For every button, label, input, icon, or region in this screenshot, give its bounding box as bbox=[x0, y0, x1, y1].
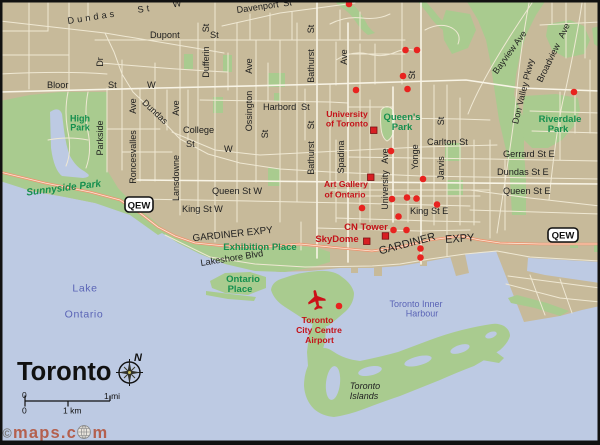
svg-text:Place: Place bbox=[228, 284, 253, 295]
svg-text:Park: Park bbox=[70, 123, 91, 133]
svg-text:St: St bbox=[301, 102, 310, 112]
svg-text:Harbour: Harbour bbox=[406, 309, 439, 319]
svg-text:Bathurst: Bathurst bbox=[306, 49, 316, 83]
svg-text:m: m bbox=[93, 424, 108, 442]
svg-text:Roncesvalles: Roncesvalles bbox=[128, 130, 138, 184]
svg-text:Ave: Ave bbox=[244, 58, 254, 73]
svg-text:Toronto: Toronto bbox=[17, 358, 111, 386]
svg-text:EXPY: EXPY bbox=[445, 232, 476, 246]
svg-text:SkyDome: SkyDome bbox=[315, 234, 358, 245]
svg-text:Park: Park bbox=[548, 124, 569, 135]
svg-text:College: College bbox=[183, 125, 214, 135]
svg-text:Exhibition Place: Exhibition Place bbox=[223, 242, 296, 253]
svg-text:Spadina: Spadina bbox=[336, 140, 346, 173]
svg-text:St: St bbox=[306, 24, 316, 33]
svg-text:W: W bbox=[147, 80, 156, 90]
svg-text:University: University bbox=[326, 109, 368, 119]
svg-text:QEW: QEW bbox=[552, 231, 575, 242]
svg-text:©: © bbox=[3, 427, 13, 441]
svg-text:Islands: Islands bbox=[350, 391, 379, 401]
svg-text:maps.c: maps.c bbox=[13, 424, 77, 442]
svg-text:St: St bbox=[260, 129, 270, 138]
svg-text:Dupont: Dupont bbox=[150, 30, 180, 40]
svg-text:N: N bbox=[134, 352, 143, 364]
svg-text:Ontario: Ontario bbox=[65, 309, 104, 321]
svg-text:Yonge: Yonge bbox=[410, 144, 420, 169]
svg-text:Dundas St E: Dundas St E bbox=[497, 167, 549, 177]
svg-text:1 km: 1 km bbox=[63, 406, 81, 416]
svg-text:Harbord: Harbord bbox=[263, 102, 296, 112]
svg-text:0: 0 bbox=[22, 390, 27, 400]
svg-text:Jarvis: Jarvis bbox=[436, 156, 446, 180]
svg-text:Ave: Ave bbox=[128, 98, 138, 113]
svg-text:St: St bbox=[306, 120, 316, 129]
svg-text:Bathurst: Bathurst bbox=[306, 141, 316, 175]
svg-text:Toronto: Toronto bbox=[302, 315, 334, 325]
svg-text:Parkside: Parkside bbox=[95, 120, 105, 155]
svg-text:St: St bbox=[210, 30, 219, 40]
svg-text:Park: Park bbox=[392, 122, 413, 133]
svg-text:CN Tower: CN Tower bbox=[344, 222, 388, 233]
svg-text:1 mi: 1 mi bbox=[104, 391, 120, 401]
svg-text:Carlton St: Carlton St bbox=[427, 137, 468, 147]
svg-text:of Ontario: of Ontario bbox=[324, 190, 365, 200]
svg-text:Gerrard St E: Gerrard St E bbox=[503, 149, 555, 159]
svg-text:Ave: Ave bbox=[339, 49, 349, 64]
svg-text:St: St bbox=[201, 23, 211, 32]
svg-text:St: St bbox=[186, 139, 195, 149]
svg-text:Queen St W: Queen St W bbox=[212, 186, 262, 196]
svg-text:Ossington: Ossington bbox=[244, 91, 254, 132]
svg-text:Toronto Inner: Toronto Inner bbox=[389, 299, 442, 309]
svg-text:Airport: Airport bbox=[305, 335, 334, 345]
svg-text:King St W: King St W bbox=[182, 204, 223, 214]
svg-text:Art Gallery: Art Gallery bbox=[324, 179, 368, 189]
svg-text:City Centre: City Centre bbox=[296, 325, 342, 335]
svg-text:St: St bbox=[436, 116, 446, 125]
svg-text:Ave: Ave bbox=[171, 100, 181, 115]
svg-text:Bloor: Bloor bbox=[47, 80, 68, 90]
svg-text:of Toronto: of Toronto bbox=[326, 119, 368, 129]
svg-text:Lansdowne: Lansdowne bbox=[171, 155, 181, 201]
svg-text:St: St bbox=[407, 70, 417, 79]
svg-text:Queen St E: Queen St E bbox=[503, 186, 551, 196]
svg-text:Toronto: Toronto bbox=[350, 381, 380, 391]
svg-text:King St E: King St E bbox=[410, 206, 448, 216]
svg-text:0: 0 bbox=[22, 406, 27, 416]
svg-text:Dr: Dr bbox=[95, 57, 105, 67]
svg-text:QEW: QEW bbox=[128, 201, 151, 212]
svg-text:Dufferin: Dufferin bbox=[201, 46, 211, 77]
svg-text:University: University bbox=[380, 170, 390, 210]
svg-text:St: St bbox=[108, 80, 117, 90]
svg-text:W: W bbox=[224, 144, 233, 154]
svg-text:Lake: Lake bbox=[72, 283, 97, 295]
